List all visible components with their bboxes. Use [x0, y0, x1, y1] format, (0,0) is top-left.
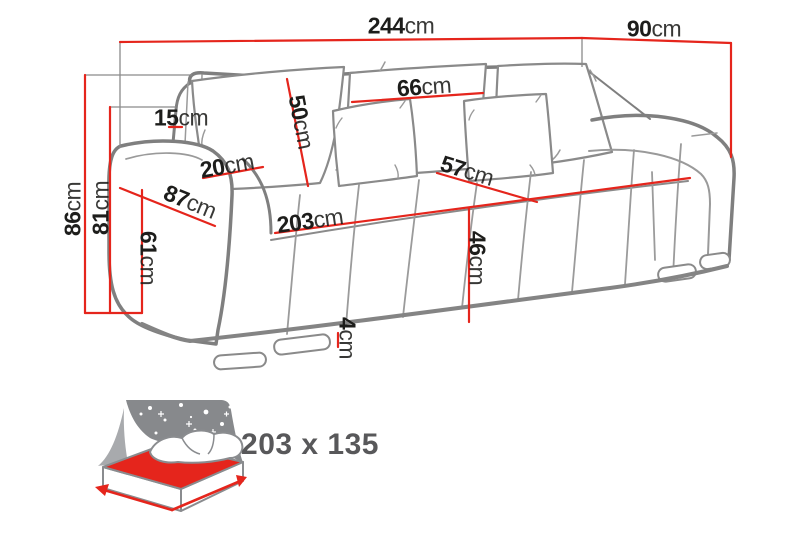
dim-total-height-label: 86cm	[62, 182, 85, 236]
dim-unit: cm	[288, 117, 319, 151]
dim-unit: cm	[335, 329, 361, 359]
dim-unit: cm	[421, 72, 452, 100]
sofa-base-edge	[142, 266, 727, 341]
dim-total-depth-label: 90cm	[627, 18, 681, 41]
sleeping-area-size-label: 203 x 135	[241, 428, 379, 462]
dim-unit: cm	[60, 182, 86, 212]
dim-value: 86	[60, 212, 86, 237]
dim-value: 203	[275, 207, 315, 238]
dim-value: 15	[154, 105, 179, 131]
dim-total-width-label: 244cm	[368, 15, 435, 38]
dim-backrest-height-label: 81cm	[90, 181, 113, 235]
dim-value: 244	[368, 13, 405, 39]
dim-back-pillow-width-label: 66cm	[396, 74, 452, 101]
dim-wing-depth-label: 15cm	[154, 107, 208, 130]
dim-unit: cm	[465, 255, 491, 285]
dim-value: 90	[627, 16, 652, 42]
dim-value: 61	[136, 231, 162, 256]
sofa-bed-icon	[95, 400, 247, 511]
dim-value: 66	[396, 74, 422, 102]
dim-seat-height-label: 46cm	[466, 231, 489, 285]
dim-unit: cm	[651, 16, 681, 42]
dim-line-244	[120, 38, 582, 42]
dim-value: 4	[335, 317, 361, 329]
dim-unit: cm	[136, 255, 162, 285]
dim-value: 81	[88, 211, 114, 236]
dim-unit: cm	[405, 13, 435, 39]
dim-unit: cm	[222, 148, 256, 179]
dim-leg-height-label: 4cm	[336, 317, 359, 359]
dim-value: 46	[465, 231, 491, 256]
dim-unit: cm	[312, 203, 345, 233]
dim-unit: cm	[178, 105, 208, 131]
dim-armrest-height-label: 61cm	[137, 231, 160, 285]
sofa-dimension-diagram: 244cm 90cm 86cm 81cm 15cm 50cm 66cm 20cm…	[0, 0, 800, 533]
dim-unit: cm	[88, 181, 114, 211]
